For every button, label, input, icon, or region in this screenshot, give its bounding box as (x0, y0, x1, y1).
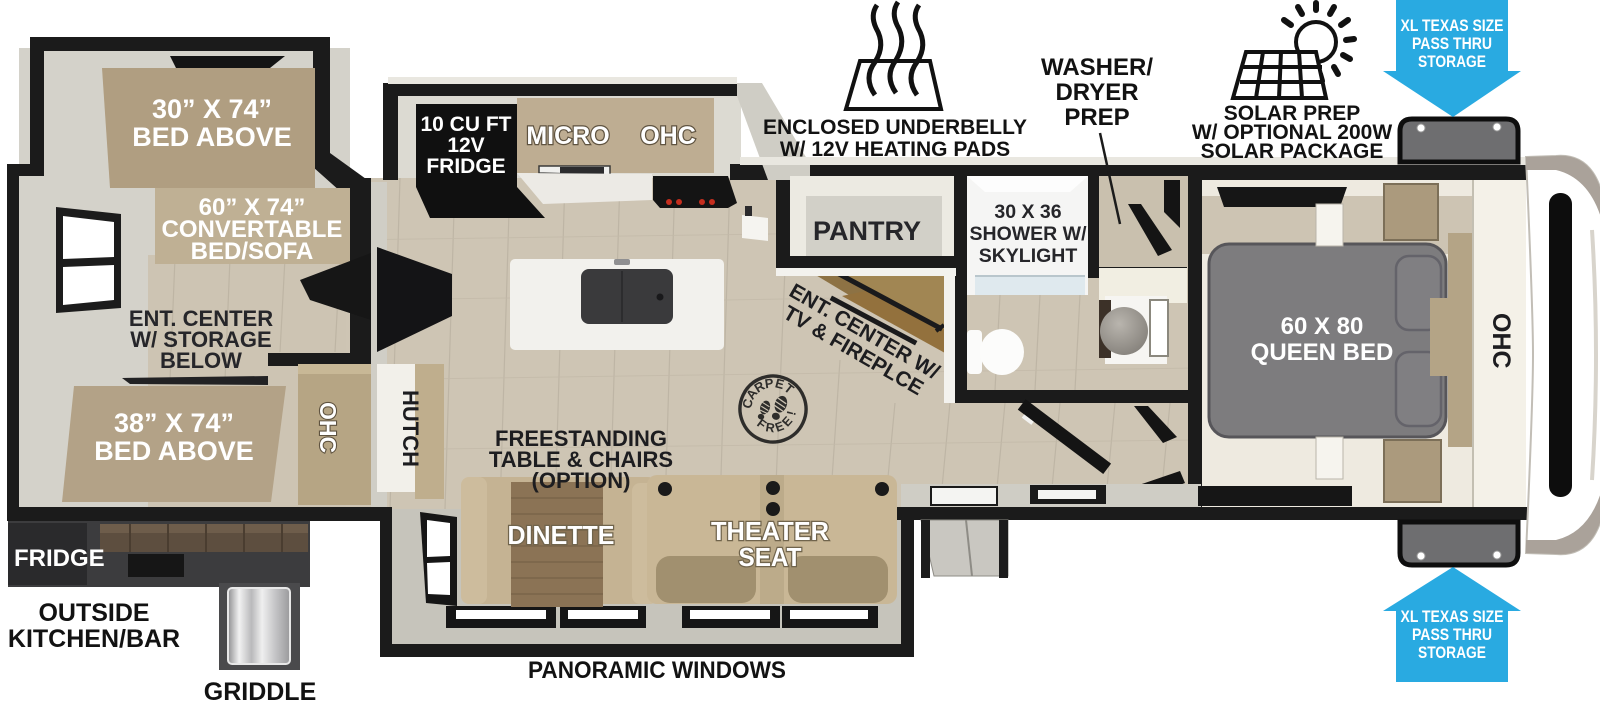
svg-text:BED ABOVE: BED ABOVE (132, 122, 292, 152)
svg-text:PASS THRU: PASS THRU (1412, 34, 1492, 53)
svg-text:BED ABOVE: BED ABOVE (94, 436, 254, 466)
svg-text:FRIDGE: FRIDGE (14, 545, 105, 572)
svg-text:GRIDDLE: GRIDDLE (204, 678, 317, 706)
svg-text:PANTRY: PANTRY (813, 216, 921, 246)
svg-text:(OPTION): (OPTION) (532, 468, 631, 493)
svg-text:HUTCH: HUTCH (398, 390, 423, 467)
svg-text:10 CU FT: 10 CU FT (420, 113, 511, 136)
svg-text:12V: 12V (447, 134, 484, 157)
svg-text:DRYER: DRYER (1055, 79, 1138, 106)
svg-text:38” X 74”: 38” X 74” (114, 408, 234, 438)
svg-text:FRIDGE: FRIDGE (426, 155, 505, 178)
svg-text:30 X 36: 30 X 36 (994, 201, 1061, 223)
svg-text:PASS THRU: PASS THRU (1412, 625, 1492, 644)
svg-text:BED/SOFA: BED/SOFA (191, 238, 314, 265)
svg-text:PREP: PREP (1064, 104, 1129, 131)
svg-text:BELOW: BELOW (160, 348, 242, 373)
svg-text:OHC: OHC (1487, 313, 1515, 369)
svg-text:QUEEN BED: QUEEN BED (1251, 339, 1394, 366)
svg-text:ENCLOSED UNDERBELLY: ENCLOSED UNDERBELLY (763, 116, 1027, 139)
svg-text:STORAGE: STORAGE (1418, 643, 1486, 662)
svg-text:OHC: OHC (315, 402, 341, 453)
svg-text:SKYLIGHT: SKYLIGHT (979, 245, 1078, 267)
svg-text:WASHER/: WASHER/ (1041, 54, 1153, 81)
svg-text:DINETTE: DINETTE (508, 520, 615, 550)
svg-text:SEAT: SEAT (739, 542, 802, 572)
svg-text:OUTSIDE: OUTSIDE (38, 599, 149, 627)
svg-text:OHC: OHC (640, 122, 696, 150)
svg-text:30” X 74”: 30” X 74” (152, 94, 272, 124)
svg-text:XL TEXAS SIZE: XL TEXAS SIZE (1401, 607, 1504, 626)
svg-text:W/ 12V HEATING PADS: W/ 12V HEATING PADS (780, 138, 1010, 161)
svg-text:KITCHEN/BAR: KITCHEN/BAR (8, 625, 180, 653)
svg-text:60 X 80: 60 X 80 (1281, 313, 1364, 340)
svg-text:XL TEXAS SIZE: XL TEXAS SIZE (1401, 16, 1504, 35)
svg-text:SOLAR PACKAGE: SOLAR PACKAGE (1201, 140, 1384, 163)
svg-text:PANORAMIC WINDOWS: PANORAMIC WINDOWS (528, 657, 786, 684)
svg-text:STORAGE: STORAGE (1418, 52, 1486, 71)
svg-text:SHOWER W/: SHOWER W/ (970, 223, 1088, 245)
svg-text:MICRO: MICRO (526, 122, 609, 150)
